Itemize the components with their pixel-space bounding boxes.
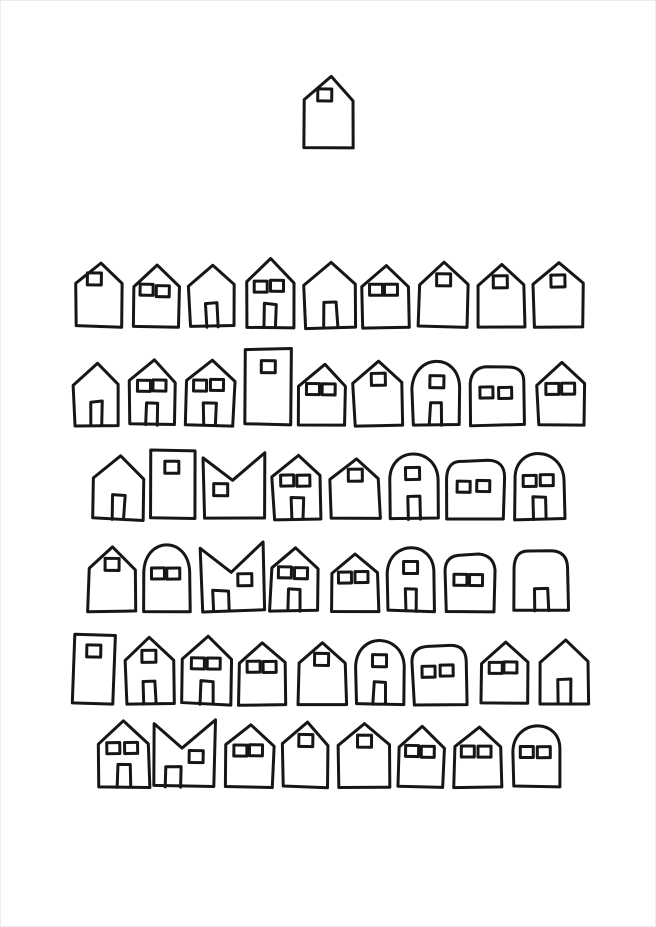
house-door bbox=[165, 766, 181, 787]
house-outline bbox=[389, 454, 439, 519]
house-window bbox=[373, 655, 387, 667]
house-window bbox=[194, 380, 207, 391]
house-window bbox=[437, 274, 451, 286]
house bbox=[513, 551, 568, 612]
house bbox=[88, 547, 136, 612]
house-window bbox=[140, 284, 153, 295]
house bbox=[454, 727, 502, 788]
house bbox=[445, 554, 496, 612]
house bbox=[72, 634, 115, 704]
house-window bbox=[210, 379, 223, 390]
house-door bbox=[533, 497, 546, 520]
house-window bbox=[105, 558, 119, 570]
house-window bbox=[421, 746, 434, 757]
house-window bbox=[271, 280, 284, 291]
house bbox=[225, 724, 274, 787]
house-outline bbox=[88, 547, 136, 612]
house-window bbox=[151, 568, 164, 579]
house-window bbox=[358, 735, 372, 747]
house-window bbox=[299, 734, 313, 746]
house-outline bbox=[185, 360, 235, 426]
house bbox=[362, 265, 410, 328]
house-door bbox=[323, 302, 338, 327]
house-window bbox=[499, 387, 512, 398]
house bbox=[143, 545, 190, 612]
house-window bbox=[461, 746, 474, 757]
house-door bbox=[213, 590, 230, 611]
house-outline bbox=[73, 363, 118, 426]
house-window bbox=[348, 469, 362, 481]
house bbox=[352, 361, 402, 426]
house bbox=[398, 726, 445, 787]
house-window bbox=[440, 665, 453, 676]
house bbox=[185, 360, 235, 426]
house-window bbox=[167, 568, 180, 579]
house-window bbox=[238, 574, 252, 586]
house-window bbox=[371, 373, 385, 385]
house-window bbox=[540, 475, 553, 486]
house-window bbox=[318, 89, 332, 101]
house-window bbox=[107, 743, 120, 754]
house-outline bbox=[470, 366, 525, 426]
house-door bbox=[91, 401, 103, 425]
house bbox=[238, 643, 286, 706]
house-window bbox=[338, 572, 351, 583]
house-door bbox=[408, 496, 421, 519]
house-window bbox=[504, 662, 517, 673]
house bbox=[514, 453, 565, 519]
house-window bbox=[306, 384, 319, 395]
house bbox=[271, 455, 321, 520]
house-window bbox=[278, 567, 291, 578]
house-window bbox=[404, 561, 418, 573]
house-outline bbox=[93, 455, 145, 520]
house-door bbox=[558, 679, 571, 704]
house-door bbox=[205, 303, 218, 328]
house-window bbox=[125, 742, 138, 753]
house-window bbox=[249, 745, 262, 756]
house-outline bbox=[125, 637, 174, 704]
house-window bbox=[370, 284, 383, 295]
house bbox=[270, 547, 319, 611]
house-window bbox=[191, 658, 204, 669]
house-outline bbox=[188, 265, 235, 327]
house bbox=[513, 726, 560, 787]
house-outline bbox=[182, 636, 232, 705]
house-door bbox=[373, 682, 386, 705]
house-outline bbox=[153, 719, 215, 787]
house-window bbox=[87, 645, 101, 657]
house-outline bbox=[352, 361, 402, 426]
house-window bbox=[493, 276, 507, 288]
house-outline bbox=[304, 76, 354, 148]
house-window bbox=[384, 284, 397, 295]
house-window bbox=[87, 273, 101, 285]
house-window bbox=[254, 281, 267, 292]
house-window bbox=[165, 461, 179, 473]
house-window bbox=[469, 574, 482, 585]
house-window bbox=[546, 383, 559, 394]
house-window bbox=[430, 376, 444, 388]
house-window bbox=[457, 481, 470, 492]
house bbox=[330, 459, 381, 519]
house bbox=[282, 722, 329, 788]
house bbox=[153, 719, 215, 788]
house-outline bbox=[303, 262, 356, 329]
illustration-page bbox=[0, 0, 656, 927]
house-window bbox=[142, 650, 156, 662]
house-window bbox=[207, 658, 220, 669]
house-window bbox=[478, 746, 491, 757]
house bbox=[356, 640, 405, 704]
house bbox=[298, 364, 346, 426]
house-window bbox=[422, 666, 435, 677]
house bbox=[203, 453, 265, 519]
house-window bbox=[297, 475, 310, 486]
house bbox=[411, 361, 460, 426]
house-window bbox=[405, 467, 419, 479]
house bbox=[539, 640, 588, 705]
house-door bbox=[117, 764, 131, 787]
houses-illustration bbox=[1, 1, 656, 927]
house bbox=[188, 265, 235, 328]
house-window bbox=[214, 484, 228, 496]
house bbox=[93, 455, 145, 520]
house-door bbox=[429, 403, 442, 426]
house-door bbox=[264, 303, 276, 327]
house bbox=[477, 264, 525, 327]
house-window bbox=[477, 480, 490, 491]
house-door bbox=[200, 681, 213, 705]
house-window bbox=[234, 745, 247, 756]
house bbox=[481, 642, 528, 703]
house-window bbox=[189, 750, 203, 762]
house-window bbox=[314, 653, 328, 665]
house-outline bbox=[200, 542, 265, 612]
house-door bbox=[146, 403, 158, 425]
house-outline bbox=[282, 722, 329, 788]
house bbox=[470, 366, 525, 426]
house bbox=[245, 348, 292, 425]
house bbox=[446, 460, 505, 520]
house bbox=[412, 645, 467, 705]
house bbox=[182, 636, 232, 705]
house bbox=[73, 363, 118, 426]
house-window bbox=[281, 475, 294, 486]
house-door bbox=[203, 403, 216, 425]
house bbox=[151, 450, 196, 518]
house-outline bbox=[238, 643, 286, 706]
house-window bbox=[153, 380, 166, 391]
house-window bbox=[520, 747, 533, 758]
house-outline bbox=[387, 548, 434, 612]
house-outline bbox=[418, 262, 468, 327]
house-outline bbox=[533, 262, 585, 328]
house bbox=[129, 359, 176, 425]
house bbox=[298, 643, 347, 706]
house-window bbox=[247, 661, 260, 672]
house bbox=[536, 362, 585, 425]
house-window bbox=[263, 661, 276, 672]
house-outline bbox=[356, 640, 405, 704]
house-door bbox=[112, 495, 125, 520]
house bbox=[331, 554, 379, 612]
house-window bbox=[137, 380, 150, 391]
house-outline bbox=[338, 724, 390, 788]
house bbox=[303, 262, 356, 329]
house-window bbox=[156, 286, 169, 297]
house-door bbox=[291, 497, 304, 519]
house-window bbox=[489, 662, 502, 673]
house-window bbox=[322, 384, 335, 395]
house-window bbox=[537, 747, 550, 758]
house-outline bbox=[411, 361, 460, 426]
house-outline bbox=[513, 551, 568, 611]
house-door bbox=[534, 588, 548, 610]
house-window bbox=[523, 475, 536, 486]
house-door bbox=[288, 589, 301, 611]
house-window bbox=[406, 745, 419, 756]
house-door bbox=[405, 589, 416, 612]
house bbox=[98, 720, 150, 788]
house-window bbox=[294, 568, 307, 579]
house bbox=[247, 258, 294, 327]
house bbox=[338, 724, 390, 788]
house bbox=[387, 548, 434, 612]
house-window bbox=[562, 383, 575, 394]
house-door bbox=[143, 681, 156, 704]
house-outline bbox=[539, 640, 588, 705]
house-window bbox=[551, 275, 565, 287]
house bbox=[75, 263, 122, 327]
house bbox=[133, 265, 180, 328]
house-outline bbox=[477, 264, 525, 327]
house-window bbox=[480, 387, 493, 398]
house bbox=[304, 76, 354, 148]
house-window bbox=[355, 571, 368, 582]
house bbox=[200, 542, 265, 612]
house bbox=[125, 637, 174, 704]
house-window bbox=[454, 574, 467, 585]
house bbox=[389, 454, 439, 520]
house bbox=[418, 262, 468, 327]
house-window bbox=[261, 361, 275, 373]
house bbox=[533, 262, 585, 328]
